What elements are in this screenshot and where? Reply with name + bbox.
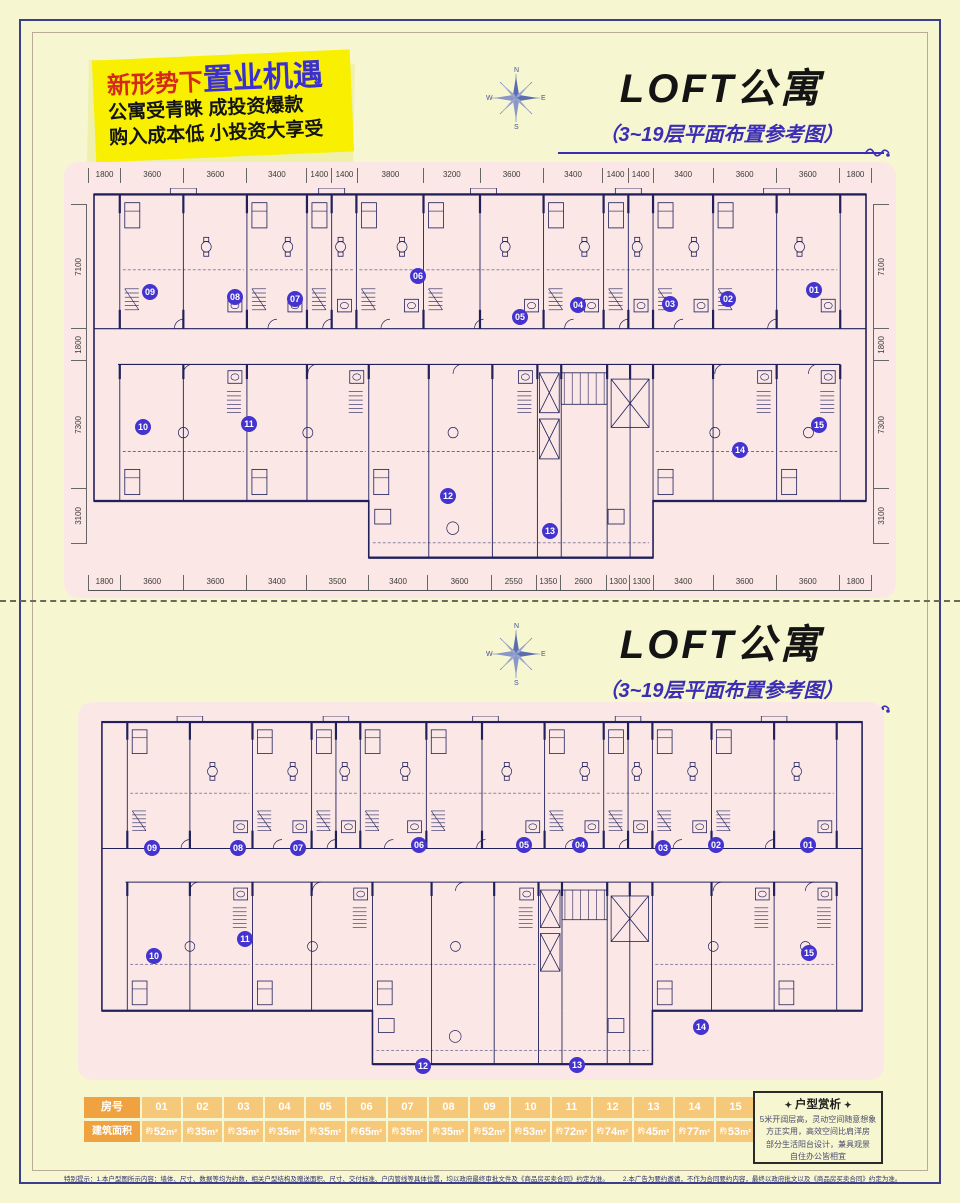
analysis-line: 部分生活阳台设计，兼具观景 [758,1139,878,1151]
unit-number-badge-13: 13 [569,1057,585,1073]
disclaimer-part2: 2.本广告为要约邀请，不作为合同要约内容，最终以政府批文以及《商品房买卖合同》约… [623,1176,901,1183]
analysis-line: 自住办公皆相宜 [758,1151,878,1163]
area-value-cell: 约35m² [306,1121,345,1142]
unit-number-badge-06: 06 [410,268,426,284]
section2-title-block: LOFT公寓 （3~19层平面布置参考图） [558,612,884,710]
promo-headline-blue: 置业机遇 [202,59,323,97]
area-value-cell: 约52m² [142,1121,181,1142]
unit-number-badge-12: 12 [440,488,456,504]
area-value-cell: 约35m² [224,1121,263,1142]
floor-plan-drawing-1 [88,188,872,566]
compass-rose-icon: N E S W [486,66,546,130]
room-number-cell: 10 [511,1097,550,1118]
unit-number-badge-07: 07 [290,840,306,856]
analysis-line: 5米开阔层高，灵动空间随意想象 [758,1114,878,1126]
title-underline [558,152,884,154]
dimension-label: 3600 [776,168,839,183]
unit-number-badge-10: 10 [135,419,151,435]
unit-number-badge-11: 11 [237,931,253,947]
unit-number-badge-05: 05 [516,837,532,853]
dimensions-top: 1800360036003400140014003800320036003400… [88,168,872,183]
area-value-cell: 约74m² [593,1121,632,1142]
flyer-page: 新形势下置业机遇 公寓受青睐 成投资爆款 购入成本低 小投资大享受 N E S … [0,0,960,1203]
dimension-label: 3600 [713,168,776,183]
room-number-cell: 03 [224,1097,263,1118]
section2-subtitle: （3~19层平面布置参考图） [558,674,884,703]
unit-number-badge-01: 01 [806,282,822,298]
room-number-cell: 09 [470,1097,509,1118]
room-number-cell: 13 [634,1097,673,1118]
unit-number-badge-09: 09 [142,284,158,300]
dimension-label: 3600 [427,575,490,590]
dimension-label: 3600 [183,168,246,183]
area-value-cell: 约53m² [716,1121,755,1142]
dimension-label: 1800 [88,168,120,183]
analysis-title: ✦户型赏析✦ [758,1096,878,1112]
room-number-cell: 06 [347,1097,386,1118]
dimension-label: 3400 [543,168,603,183]
dimension-label: 7300 [71,360,86,488]
unit-number-badge-14: 14 [693,1019,709,1035]
area-value-cell: 约72m² [552,1121,591,1142]
dimension-label: 7100 [874,204,889,328]
room-number-cell: 08 [429,1097,468,1118]
dimension-label: 3400 [653,168,713,183]
dimension-label: 1800 [839,168,872,183]
area-value-cell: 约52m² [470,1121,509,1142]
analysis-box: ✦户型赏析✦ 5米开阔层高，灵动空间随意想象 方正实用，高效空间比肩洋房 部分生… [753,1091,883,1164]
unit-number-badge-14: 14 [732,442,748,458]
dimension-label: 3600 [713,575,776,590]
analysis-text: 5米开阔层高，灵动空间随意想象 方正实用，高效空间比肩洋房 部分生活阳台设计，兼… [758,1114,878,1164]
section1-subtitle: （3~19层平面布置参考图） [558,118,884,147]
dimension-label: 7300 [874,360,889,488]
dimension-label: 1800 [839,575,872,590]
floor-plan-panel-2: 090807060504030201101112131415 [78,702,884,1080]
room-number-cell: 04 [265,1097,304,1118]
unit-number-badge-11: 11 [241,416,257,432]
compass-n-label: N [514,623,519,630]
compass-n-label: N [514,67,519,74]
leaf-flourish-icon: ✦ [844,1100,852,1110]
unit-number-badge-03: 03 [662,296,678,312]
dimension-label: 3400 [246,575,306,590]
dimension-label: 1800 [71,328,86,360]
room-header-label: 房号 [84,1097,140,1118]
unit-number-badge-01: 01 [800,837,816,853]
area-value-cell: 约53m² [511,1121,550,1142]
dimension-label: 3600 [120,575,183,590]
unit-number-badge-12: 12 [415,1058,431,1074]
room-number-cell: 01 [142,1097,181,1118]
area-value-cell: 约35m² [265,1121,304,1142]
dimension-label: 3400 [653,575,713,590]
area-table: 房号010203040506070809101112131415建筑面积约52m… [84,1097,755,1142]
compass-w-label: W [486,95,493,102]
dimension-label: 3600 [480,168,543,183]
unit-number-badge-05: 05 [512,309,528,325]
area-value-cell: 约35m² [388,1121,427,1142]
area-header-label: 建筑面积 [84,1121,140,1142]
unit-number-badge-02: 02 [720,291,736,307]
dimension-label: 3600 [120,168,183,183]
compass-rose-icon: N E S W [486,622,546,686]
analysis-title-text: 户型赏析 [795,1099,841,1111]
area-value-cell: 约35m² [429,1121,468,1142]
analysis-line: 方正实用，高效空间比肩洋房 [758,1126,878,1138]
dimension-label: 3100 [874,488,889,544]
cut-line [0,600,960,602]
dimension-label: 7100 [71,204,86,328]
room-number-cell: 15 [716,1097,755,1118]
dimension-label: 1400 [331,168,356,183]
legal-disclaimer: 特别提示：1.本户型图所示内容：墙体、尺寸、数据等均为约数，相关户型结构及赠送面… [64,1173,902,1183]
dimension-label: 1350 [536,575,560,590]
room-number-cell: 12 [593,1097,632,1118]
dimension-label: 2550 [491,575,536,590]
floor-plan-drawing-2 [96,716,868,1072]
dimension-label: 3500 [306,575,367,590]
unit-number-badge-10: 10 [146,948,162,964]
dimension-label: 3100 [71,488,86,544]
dimension-label: 1800 [88,575,120,590]
dimension-label: 2600 [560,575,606,590]
area-value-cell: 约65m² [347,1121,386,1142]
section1-title-block: LOFT公寓 （3~19层平面布置参考图） [558,56,884,154]
dimension-label: 1400 [602,168,627,183]
unit-number-badge-04: 04 [570,297,586,313]
unit-number-badge-06: 06 [411,837,427,853]
dimension-label: 1400 [306,168,331,183]
floor-plan-panel-1: 1800360036003400140014003800320036003400… [64,162,896,598]
room-number-cell: 02 [183,1097,222,1118]
dimension-label: 3200 [423,168,479,183]
dimension-label: 3800 [357,168,424,183]
room-number-cell: 14 [675,1097,714,1118]
dimensions-bottom: 1800360036003400350034003600255013502600… [88,575,872,591]
promo-headline-red: 新形势下 [106,69,203,100]
compass-e-label: E [541,651,546,658]
unit-number-badge-02: 02 [708,837,724,853]
dimension-label: 3600 [183,575,246,590]
unit-number-badge-08: 08 [230,840,246,856]
dimension-label: 3400 [246,168,306,183]
dimension-label: 1300 [606,575,629,590]
section1-title: LOFT公寓 [558,56,884,114]
unit-number-badge-04: 04 [572,837,588,853]
area-value-cell: 约35m² [183,1121,222,1142]
compass-s-label: S [514,680,519,686]
area-value-cell: 约45m² [634,1121,673,1142]
promo-sticker: 新形势下置业机遇 公寓受青睐 成投资爆款 购入成本低 小投资大享受 [92,49,354,162]
compass-w-label: W [486,651,493,658]
dimension-label: 3400 [368,575,428,590]
unit-number-badge-09: 09 [144,840,160,856]
disclaimer-part1: 特别提示：1.本户型图所示内容：墙体、尺寸、数据等均为约数，相关户型结构及赠送面… [64,1176,609,1183]
unit-number-badge-07: 07 [287,291,303,307]
area-value-cell: 约77m² [675,1121,714,1142]
compass-s-label: S [514,124,519,130]
compass-e-label: E [541,95,546,102]
room-number-cell: 05 [306,1097,345,1118]
dimensions-left: 7100180073003100 [71,204,87,544]
section2-title: LOFT公寓 [558,612,884,670]
unit-number-badge-15: 15 [801,945,817,961]
dimension-label: 3600 [776,575,839,590]
flourish-icon [864,145,890,159]
leaf-flourish-icon: ✦ [784,1100,792,1110]
unit-number-badge-15: 15 [811,417,827,433]
dimensions-right: 7100180073003100 [873,204,889,544]
room-number-cell: 07 [388,1097,427,1118]
unit-number-badge-13: 13 [542,523,558,539]
dimension-label: 1300 [629,575,652,590]
room-number-cell: 11 [552,1097,591,1118]
dimension-label: 1800 [874,328,889,360]
unit-number-badge-08: 08 [227,289,243,305]
unit-number-badge-03: 03 [655,840,671,856]
dimension-label: 1400 [628,168,653,183]
